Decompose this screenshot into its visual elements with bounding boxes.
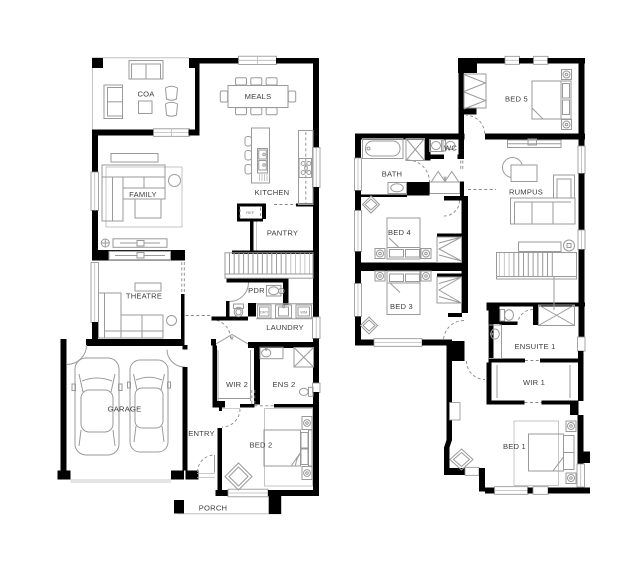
svg-text:PORCH: PORCH [199,504,227,513]
svg-text:PANTRY: PANTRY [267,229,298,238]
svg-text:BED 1: BED 1 [503,442,526,451]
svg-text:RUMPUS: RUMPUS [509,188,543,197]
svg-text:ENSUITE 1: ENSUITE 1 [514,342,555,351]
svg-text:FAMILY: FAMILY [129,190,157,199]
svg-text:BED 5: BED 5 [505,95,528,104]
svg-text:KITCHEN: KITCHEN [255,188,290,197]
svg-text:WIR 2: WIR 2 [226,380,248,389]
svg-text:WIR 1: WIR 1 [523,378,545,387]
svg-text:WC: WC [444,144,457,153]
svg-text:THEATRE: THEATRE [126,291,162,300]
svg-text:BED 4: BED 4 [388,228,411,237]
svg-text:COA: COA [137,90,155,99]
svg-text:DRY: DRY [260,310,269,315]
svg-text:BED 3: BED 3 [390,302,413,311]
svg-text:WM: WM [300,310,307,315]
svg-text:LAUNDRY: LAUNDRY [266,323,304,332]
svg-text:PDR: PDR [248,286,265,295]
svg-text:ENTRY: ENTRY [188,429,215,438]
svg-text:BED 2: BED 2 [250,441,273,450]
svg-text:BATH: BATH [382,170,403,179]
svg-text:MEALS: MEALS [245,92,272,101]
svg-text:ENS 2: ENS 2 [273,380,296,389]
svg-text:GARAGE: GARAGE [108,404,142,413]
svg-text:REF: REF [246,210,255,215]
